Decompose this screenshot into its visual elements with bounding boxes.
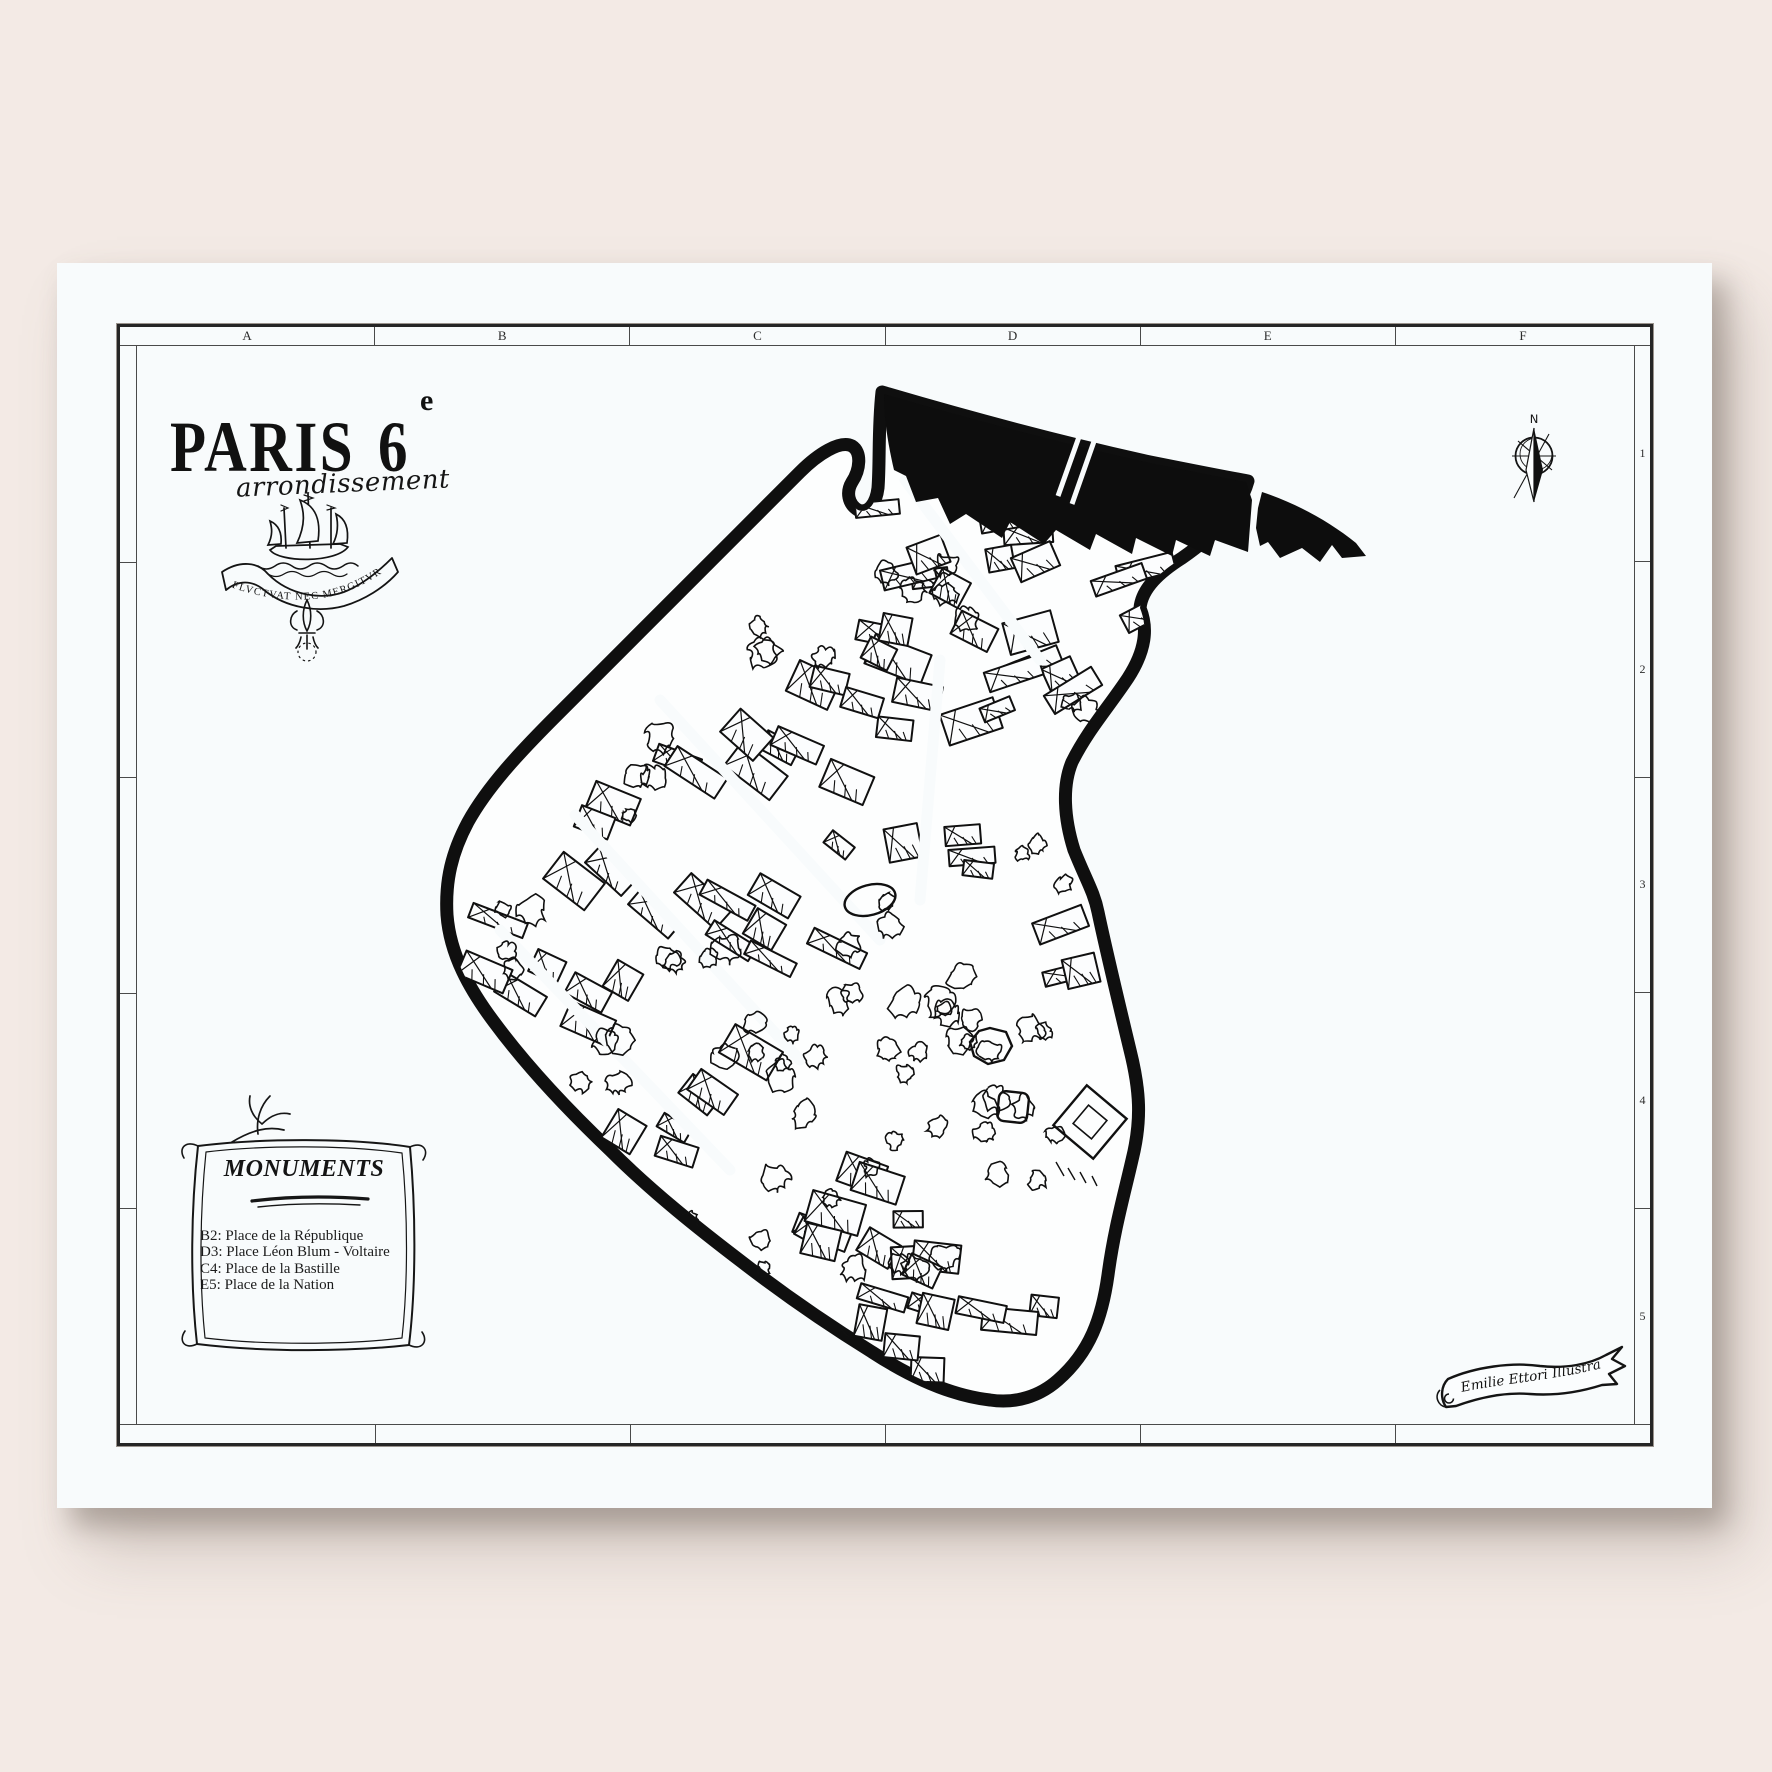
grid-column-label: F [1396,327,1650,345]
grid-column-tick [630,1425,631,1443]
scene: ABCDEF 12345 PARIS6 e arrondissement MON… [0,0,1772,1772]
grid-row-label: 3 [1635,778,1650,994]
grid-column-tick [1395,1425,1396,1443]
grid-row-tick [120,777,136,778]
grid-column-tick [1140,1425,1141,1443]
grid-row-label: 4 [1635,993,1650,1209]
legend-heading: MONUMENTS [208,1156,400,1183]
legend-item: C4: Place de la Bastille [200,1261,415,1277]
grid-column-tick [375,1425,376,1443]
grid-row-tick [120,562,136,563]
grid-row-label: 1 [1635,346,1650,562]
title-ordinal-suffix: e [420,384,433,418]
grid-column-tick [885,1425,886,1443]
grid-column-label: D [886,327,1141,345]
grid-column-label: C [630,327,885,345]
grid-row-label: 2 [1635,562,1650,778]
grid-column-header: ABCDEF [120,327,1650,346]
grid-column-label: E [1141,327,1396,345]
grid-column-label: A [120,327,375,345]
grid-left-margin [120,346,137,1424]
legend-item: D3: Place Léon Blum - Voltaire [200,1244,415,1260]
legend-list: B2: Place de la RépubliqueD3: Place Léon… [200,1228,415,1294]
grid-row-header: 12345 [1634,346,1650,1424]
legend-item: E5: Place de la Nation [200,1277,415,1293]
grid-row-tick [120,1208,136,1209]
grid-row-tick [120,993,136,994]
grid-row-label: 5 [1635,1209,1650,1424]
grid-bottom-margin [120,1424,1650,1443]
legend-item: B2: Place de la République [200,1228,415,1244]
grid-column-label: B [375,327,630,345]
